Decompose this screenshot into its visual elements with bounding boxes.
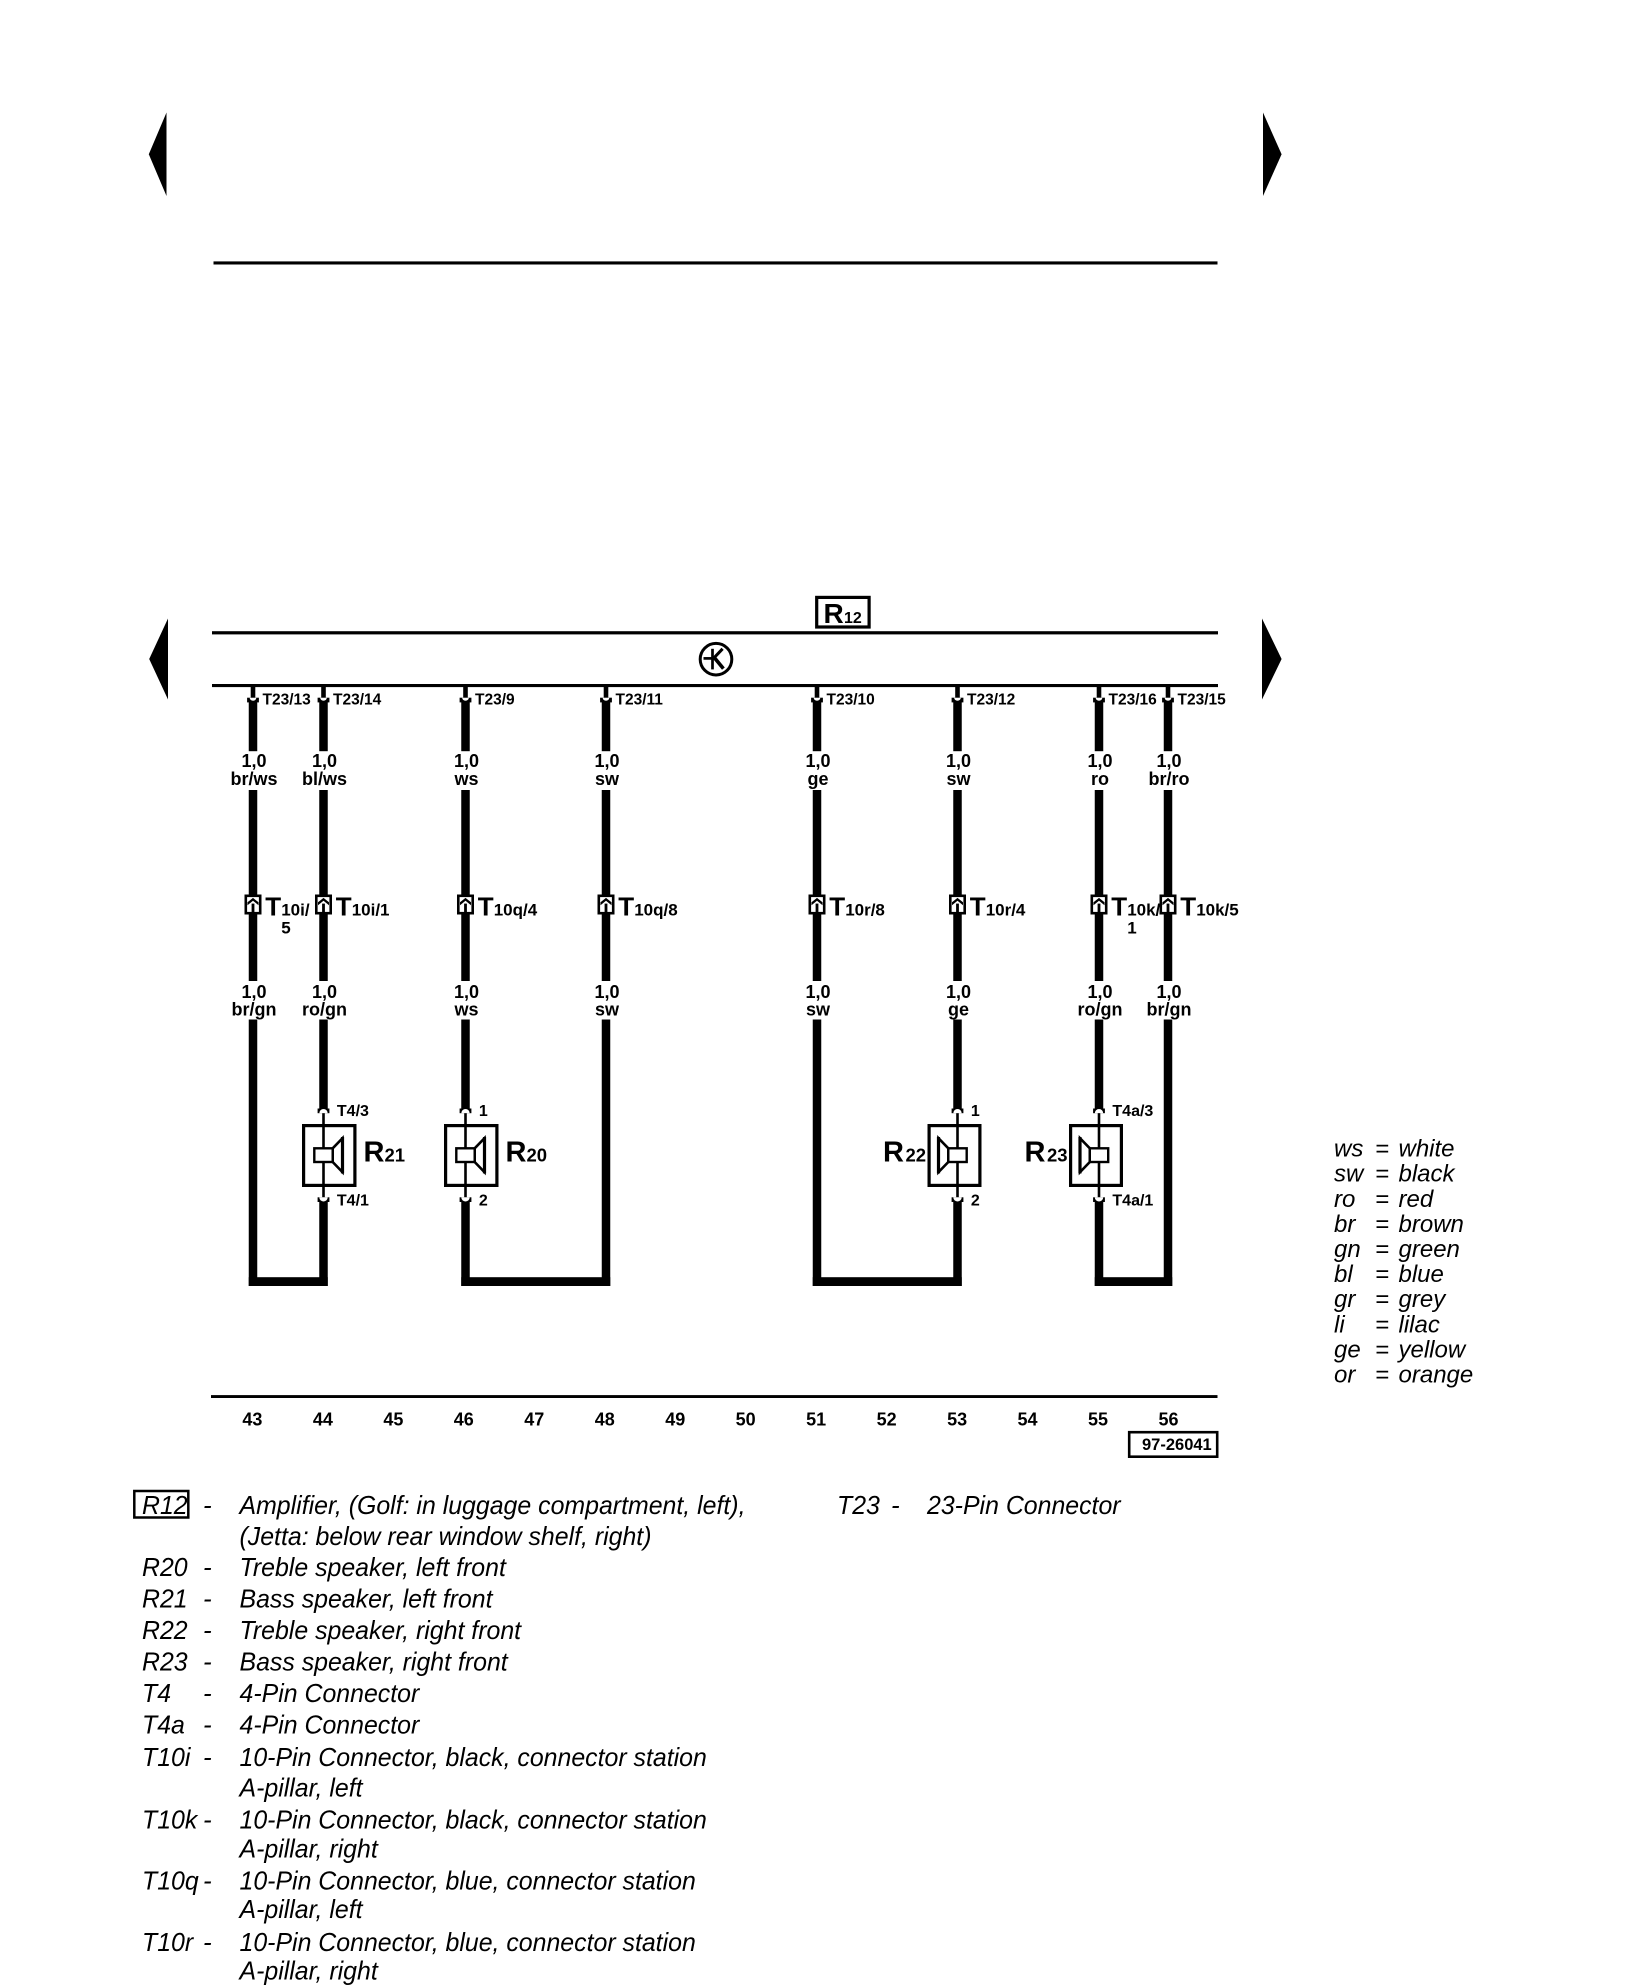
svg-text:ro: ro bbox=[1091, 769, 1109, 789]
svg-text:gn: gn bbox=[1334, 1236, 1361, 1263]
svg-text:44: 44 bbox=[313, 1409, 333, 1429]
svg-text:T: T bbox=[970, 891, 986, 921]
svg-text:grey: grey bbox=[1399, 1286, 1448, 1313]
svg-text:br/ws: br/ws bbox=[230, 769, 277, 789]
svg-text:53: 53 bbox=[947, 1409, 967, 1429]
svg-text:1,0: 1,0 bbox=[241, 751, 266, 771]
svg-text:20: 20 bbox=[527, 1144, 548, 1165]
svg-text:10k/: 10k/ bbox=[1127, 900, 1160, 919]
svg-text:T: T bbox=[336, 891, 352, 921]
svg-text:T23/15: T23/15 bbox=[1178, 692, 1227, 709]
svg-text:=: = bbox=[1375, 1186, 1389, 1213]
svg-text:=: = bbox=[1375, 1362, 1389, 1389]
svg-text:sw: sw bbox=[806, 1000, 831, 1020]
svg-text:10-Pin Connector, black, conne: 10-Pin Connector, black, connector stati… bbox=[240, 1742, 707, 1772]
svg-text:-: - bbox=[203, 1552, 212, 1582]
svg-text:-: - bbox=[203, 1866, 212, 1896]
svg-text:22: 22 bbox=[906, 1144, 927, 1165]
svg-text:T23/10: T23/10 bbox=[827, 692, 875, 709]
svg-text:10-Pin Connector, blue, connec: 10-Pin Connector, blue, connector statio… bbox=[240, 1866, 696, 1896]
svg-text:T: T bbox=[265, 891, 281, 921]
svg-text:R12: R12 bbox=[142, 1490, 188, 1520]
svg-text:23: 23 bbox=[1047, 1144, 1068, 1165]
svg-text:T4a/3: T4a/3 bbox=[1112, 1103, 1153, 1120]
svg-text:1,0: 1,0 bbox=[454, 751, 479, 771]
svg-text:1,0: 1,0 bbox=[1087, 751, 1112, 771]
svg-text:10-Pin Connector, blue, connec: 10-Pin Connector, blue, connector statio… bbox=[240, 1927, 696, 1957]
svg-text:R: R bbox=[364, 1136, 385, 1168]
svg-text:ge: ge bbox=[1334, 1336, 1361, 1363]
svg-text:T10q: T10q bbox=[142, 1866, 199, 1896]
svg-text:46: 46 bbox=[454, 1409, 474, 1429]
svg-text:2: 2 bbox=[971, 1193, 980, 1210]
svg-text:10i/: 10i/ bbox=[281, 900, 310, 919]
svg-text:T23/11: T23/11 bbox=[616, 692, 664, 709]
svg-text:R: R bbox=[824, 598, 844, 629]
svg-text:49: 49 bbox=[665, 1409, 685, 1429]
svg-text:A-pillar, right: A-pillar, right bbox=[238, 1834, 380, 1864]
svg-text:-: - bbox=[203, 1584, 212, 1614]
svg-text:ws: ws bbox=[1334, 1136, 1363, 1163]
svg-text:-: - bbox=[203, 1710, 212, 1740]
svg-text:T10k: T10k bbox=[142, 1805, 199, 1835]
svg-text:T23: T23 bbox=[837, 1490, 880, 1520]
svg-text:T4/3: T4/3 bbox=[337, 1103, 369, 1120]
svg-text:=: = bbox=[1375, 1336, 1389, 1363]
svg-text:A-pillar, left: A-pillar, left bbox=[238, 1894, 365, 1924]
svg-text:45: 45 bbox=[383, 1409, 403, 1429]
svg-text:T4: T4 bbox=[142, 1678, 171, 1708]
svg-text:br/ro: br/ro bbox=[1148, 769, 1189, 789]
svg-text:-: - bbox=[203, 1927, 212, 1957]
svg-text:R21: R21 bbox=[142, 1584, 188, 1614]
svg-text:T: T bbox=[1111, 891, 1127, 921]
svg-text:12: 12 bbox=[844, 610, 862, 627]
svg-text:T: T bbox=[478, 891, 494, 921]
svg-text:(Jetta: below rear window shel: (Jetta: below rear window shelf, right) bbox=[240, 1521, 652, 1551]
svg-text:br: br bbox=[1334, 1211, 1356, 1238]
svg-text:R23: R23 bbox=[142, 1647, 188, 1677]
svg-text:=: = bbox=[1375, 1136, 1389, 1163]
svg-text:T4a/1: T4a/1 bbox=[1112, 1193, 1153, 1210]
svg-text:-: - bbox=[203, 1678, 212, 1708]
svg-text:10r/4: 10r/4 bbox=[986, 900, 1026, 919]
svg-text:4-Pin Connector: 4-Pin Connector bbox=[240, 1678, 421, 1708]
svg-text:ro/gn: ro/gn bbox=[1078, 1000, 1123, 1020]
svg-text:ge: ge bbox=[948, 1000, 969, 1020]
svg-text:=: = bbox=[1375, 1161, 1389, 1188]
svg-text:Treble speaker, left front: Treble speaker, left front bbox=[240, 1552, 508, 1582]
svg-text:-: - bbox=[203, 1647, 212, 1677]
svg-text:21: 21 bbox=[385, 1144, 406, 1165]
svg-text:50: 50 bbox=[736, 1409, 756, 1429]
svg-text:T4/1: T4/1 bbox=[337, 1193, 369, 1210]
svg-text:Treble speaker, right front: Treble speaker, right front bbox=[240, 1615, 523, 1645]
svg-text:43: 43 bbox=[242, 1409, 262, 1429]
svg-text:sw: sw bbox=[946, 769, 971, 789]
svg-text:52: 52 bbox=[877, 1409, 897, 1429]
svg-text:T10i: T10i bbox=[142, 1742, 192, 1772]
svg-text:=: = bbox=[1375, 1211, 1389, 1238]
svg-text:T: T bbox=[618, 891, 634, 921]
svg-text:T23/9: T23/9 bbox=[475, 692, 515, 709]
svg-text:R: R bbox=[883, 1136, 904, 1168]
svg-text:1: 1 bbox=[1127, 919, 1136, 938]
svg-text:=: = bbox=[1375, 1311, 1389, 1338]
svg-text:T: T bbox=[829, 891, 845, 921]
svg-text:-: - bbox=[203, 1490, 212, 1520]
svg-text:T23/16: T23/16 bbox=[1109, 692, 1158, 709]
svg-text:li: li bbox=[1334, 1311, 1345, 1338]
svg-text:5: 5 bbox=[281, 919, 290, 938]
svg-text:blue: blue bbox=[1399, 1261, 1444, 1288]
svg-text:red: red bbox=[1399, 1186, 1434, 1213]
svg-text:55: 55 bbox=[1088, 1409, 1108, 1429]
svg-text:R: R bbox=[506, 1136, 527, 1168]
svg-text:10i/1: 10i/1 bbox=[352, 900, 390, 919]
svg-text:-: - bbox=[203, 1742, 212, 1772]
svg-text:1,0: 1,0 bbox=[312, 751, 337, 771]
svg-text:orange: orange bbox=[1399, 1362, 1474, 1389]
svg-text:1,0: 1,0 bbox=[594, 751, 619, 771]
svg-text:green: green bbox=[1399, 1236, 1460, 1263]
svg-text:or: or bbox=[1334, 1362, 1356, 1389]
svg-text:A-pillar, right: A-pillar, right bbox=[238, 1956, 380, 1986]
svg-text:br/gn: br/gn bbox=[1147, 1000, 1192, 1020]
svg-text:1,0: 1,0 bbox=[946, 751, 971, 771]
svg-text:yellow: yellow bbox=[1397, 1336, 1467, 1363]
svg-text:Bass speaker, left front: Bass speaker, left front bbox=[240, 1584, 495, 1614]
svg-text:10k/5: 10k/5 bbox=[1196, 900, 1239, 919]
svg-text:1: 1 bbox=[479, 1103, 488, 1120]
svg-text:bl/ws: bl/ws bbox=[302, 769, 347, 789]
svg-text:T4a: T4a bbox=[142, 1710, 185, 1740]
svg-text:T23/12: T23/12 bbox=[967, 692, 1015, 709]
svg-text:97-26041: 97-26041 bbox=[1142, 1436, 1212, 1454]
svg-text:51: 51 bbox=[806, 1409, 826, 1429]
svg-text:ro: ro bbox=[1334, 1186, 1355, 1213]
svg-text:54: 54 bbox=[1018, 1409, 1038, 1429]
svg-text:48: 48 bbox=[595, 1409, 615, 1429]
svg-text:47: 47 bbox=[524, 1409, 544, 1429]
svg-text:4-Pin Connector: 4-Pin Connector bbox=[240, 1710, 421, 1740]
svg-text:lilac: lilac bbox=[1399, 1311, 1440, 1338]
svg-text:2: 2 bbox=[479, 1193, 488, 1210]
svg-text:Amplifier, (Golf: in luggage c: Amplifier, (Golf: in luggage compartment… bbox=[238, 1490, 746, 1520]
svg-text:10-Pin Connector, black, conne: 10-Pin Connector, black, connector stati… bbox=[240, 1805, 707, 1835]
svg-text:brown: brown bbox=[1399, 1211, 1464, 1238]
svg-text:56: 56 bbox=[1158, 1409, 1178, 1429]
svg-text:T10r: T10r bbox=[142, 1927, 194, 1957]
svg-text:1: 1 bbox=[971, 1103, 980, 1120]
svg-text:ro/gn: ro/gn bbox=[302, 1000, 347, 1020]
svg-text:T23/14: T23/14 bbox=[333, 692, 382, 709]
svg-text:ge: ge bbox=[807, 769, 828, 789]
svg-text:=: = bbox=[1375, 1261, 1389, 1288]
svg-text:sw: sw bbox=[595, 769, 620, 789]
svg-text:black: black bbox=[1399, 1161, 1457, 1188]
svg-text:10q/8: 10q/8 bbox=[634, 900, 677, 919]
svg-text:br/gn: br/gn bbox=[232, 1000, 277, 1020]
svg-text:=: = bbox=[1375, 1236, 1389, 1263]
svg-text:10r/8: 10r/8 bbox=[845, 900, 885, 919]
svg-text:1,0: 1,0 bbox=[805, 751, 830, 771]
svg-text:R22: R22 bbox=[142, 1615, 188, 1645]
svg-text:-: - bbox=[203, 1805, 212, 1835]
svg-text:gr: gr bbox=[1334, 1286, 1356, 1313]
svg-text:R20: R20 bbox=[142, 1552, 188, 1582]
svg-text:white: white bbox=[1399, 1136, 1455, 1163]
svg-text:sw: sw bbox=[1334, 1161, 1365, 1188]
svg-text:T23/13: T23/13 bbox=[263, 692, 312, 709]
svg-text:1,0: 1,0 bbox=[1156, 751, 1181, 771]
svg-text:ws: ws bbox=[453, 1000, 478, 1020]
svg-text:Bass speaker, right front: Bass speaker, right front bbox=[240, 1647, 510, 1677]
svg-text:R: R bbox=[1025, 1136, 1046, 1168]
svg-text:-: - bbox=[891, 1490, 900, 1520]
svg-text:-: - bbox=[203, 1615, 212, 1645]
svg-text:ws: ws bbox=[453, 769, 478, 789]
svg-text:=: = bbox=[1375, 1286, 1389, 1313]
svg-text:bl: bl bbox=[1334, 1261, 1353, 1288]
svg-text:A-pillar, left: A-pillar, left bbox=[238, 1773, 365, 1803]
svg-text:T: T bbox=[1180, 891, 1196, 921]
svg-text:sw: sw bbox=[595, 1000, 620, 1020]
svg-text:23-Pin Connector: 23-Pin Connector bbox=[926, 1490, 1122, 1520]
svg-text:10q/4: 10q/4 bbox=[494, 900, 538, 919]
